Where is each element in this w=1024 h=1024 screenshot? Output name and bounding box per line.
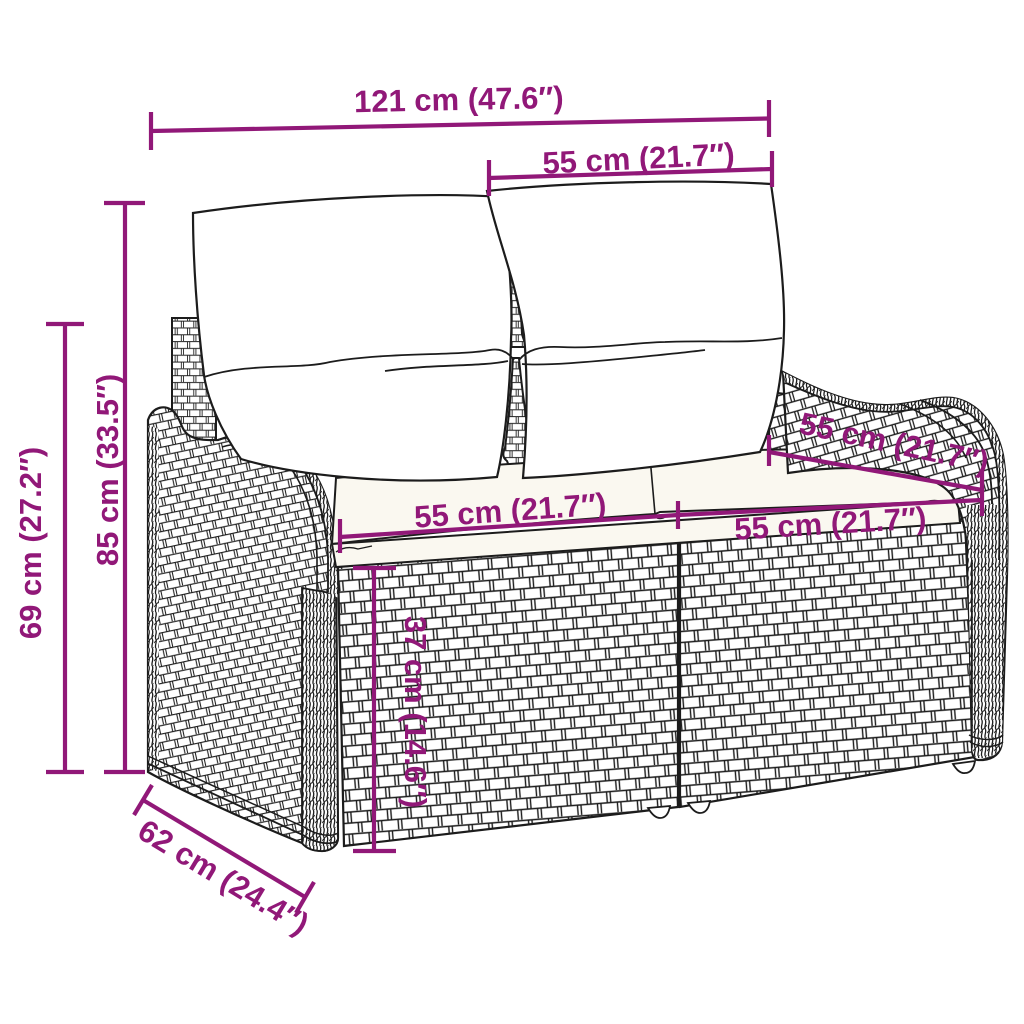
svg-text:121 cm (47.6″): 121 cm (47.6″) [354, 80, 564, 119]
svg-text:85 cm (33.5″): 85 cm (33.5″) [90, 374, 125, 566]
svg-text:69 cm (27.2″): 69 cm (27.2″) [13, 447, 48, 639]
svg-text:37 cm (14.6″): 37 cm (14.6″) [398, 616, 433, 808]
